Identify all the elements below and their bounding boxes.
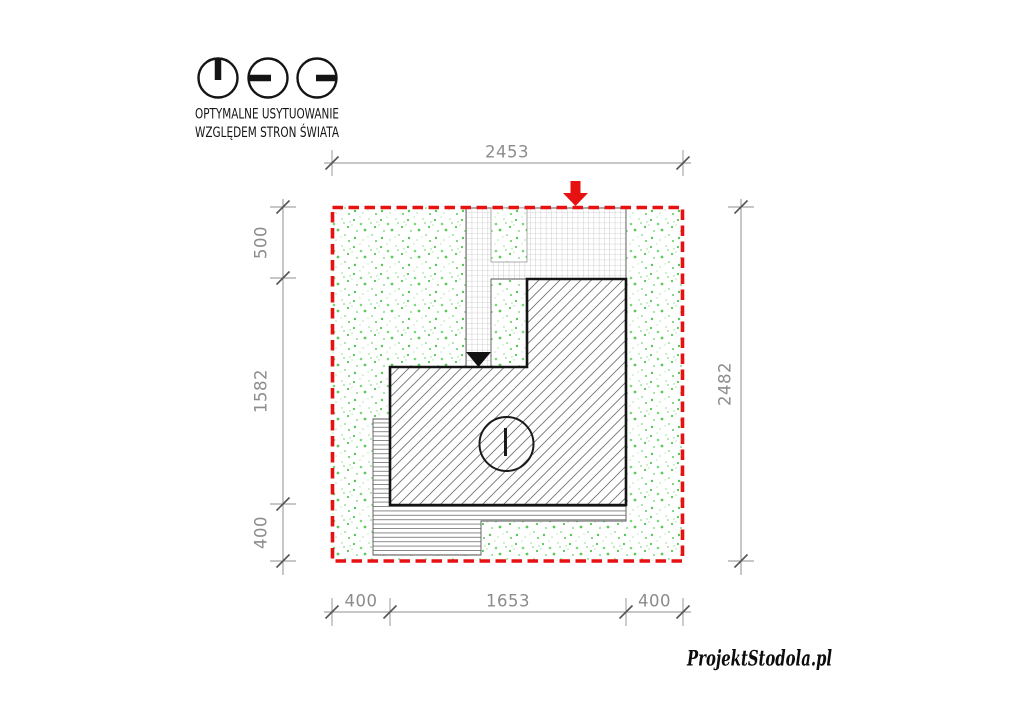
sun-position-legend: OPTYMALNE USYTUOWANIE WZGLĘDEM STRON ŚWI… — [195, 59, 339, 142]
dimension-left — [270, 199, 296, 575]
dim-label-left-top: 500 — [252, 226, 271, 259]
sun-clock-east-icon — [298, 59, 337, 98]
sun-clock-noon-icon — [199, 59, 238, 98]
dim-label-left-middle: 1582 — [252, 369, 271, 413]
entry-direction-arrow-icon — [563, 181, 588, 206]
dim-label-right-total: 2482 — [716, 362, 735, 406]
dim-label-top-total: 2453 — [485, 143, 529, 162]
dim-label-left-bottom: 400 — [252, 516, 271, 549]
site-plan-drawing: OPTYMALNE USYTUOWANIE WZGLĘDEM STRON ŚWI… — [0, 0, 1024, 724]
dim-label-bottom-middle: 1653 — [486, 592, 530, 611]
dim-label-bottom-right: 400 — [638, 592, 671, 611]
plot-area — [332, 181, 683, 561]
sun-clock-west-icon — [249, 59, 288, 98]
legend-caption-line1: OPTYMALNE USYTUOWANIE — [195, 107, 339, 123]
lawn-notch-in-driveway — [491, 208, 527, 262]
site-plan-page: OPTYMALNE USYTUOWANIE WZGLĘDEM STRON ŚWI… — [0, 0, 1024, 724]
dim-label-bottom-left: 400 — [345, 592, 378, 611]
legend-caption-line2: WZGLĘDEM STRON ŚWIATA — [195, 123, 339, 141]
watermark-logo: ProjektStodola.pl — [686, 646, 832, 671]
